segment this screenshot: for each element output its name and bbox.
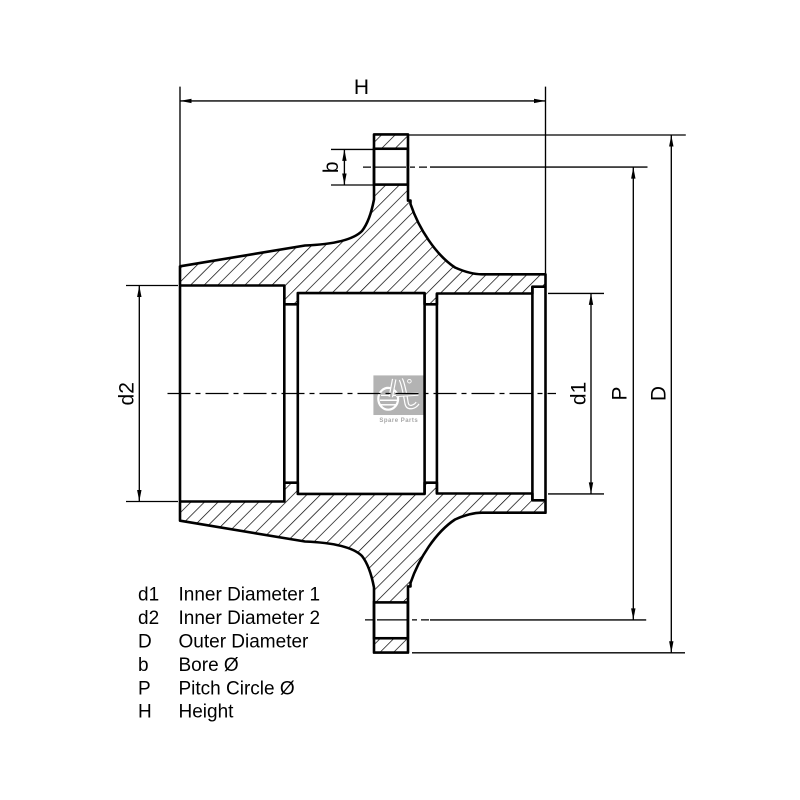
svg-text:D: D — [138, 632, 152, 653]
svg-text:b: b — [320, 161, 343, 173]
svg-text:Bore Ø: Bore Ø — [179, 655, 239, 676]
svg-text:Outer Diameter: Outer Diameter — [179, 632, 310, 653]
svg-text:Spare Parts: Spare Parts — [379, 418, 418, 424]
svg-text:d1: d1 — [568, 382, 591, 405]
svg-text:H: H — [138, 702, 152, 723]
svg-text:Inner Diameter 2: Inner Diameter 2 — [179, 608, 321, 629]
svg-text:Height: Height — [179, 702, 235, 723]
svg-text:P: P — [609, 386, 632, 400]
svg-text:P: P — [138, 678, 151, 699]
svg-text:d2: d2 — [138, 608, 159, 629]
svg-text:H: H — [354, 76, 369, 99]
svg-text:Pitch Circle Ø: Pitch Circle Ø — [179, 678, 295, 699]
svg-text:d1: d1 — [138, 585, 159, 606]
svg-text:d2: d2 — [115, 382, 138, 405]
svg-text:D: D — [648, 386, 671, 401]
svg-text:b: b — [138, 655, 149, 676]
svg-text:Inner Diameter 1: Inner Diameter 1 — [179, 585, 321, 606]
